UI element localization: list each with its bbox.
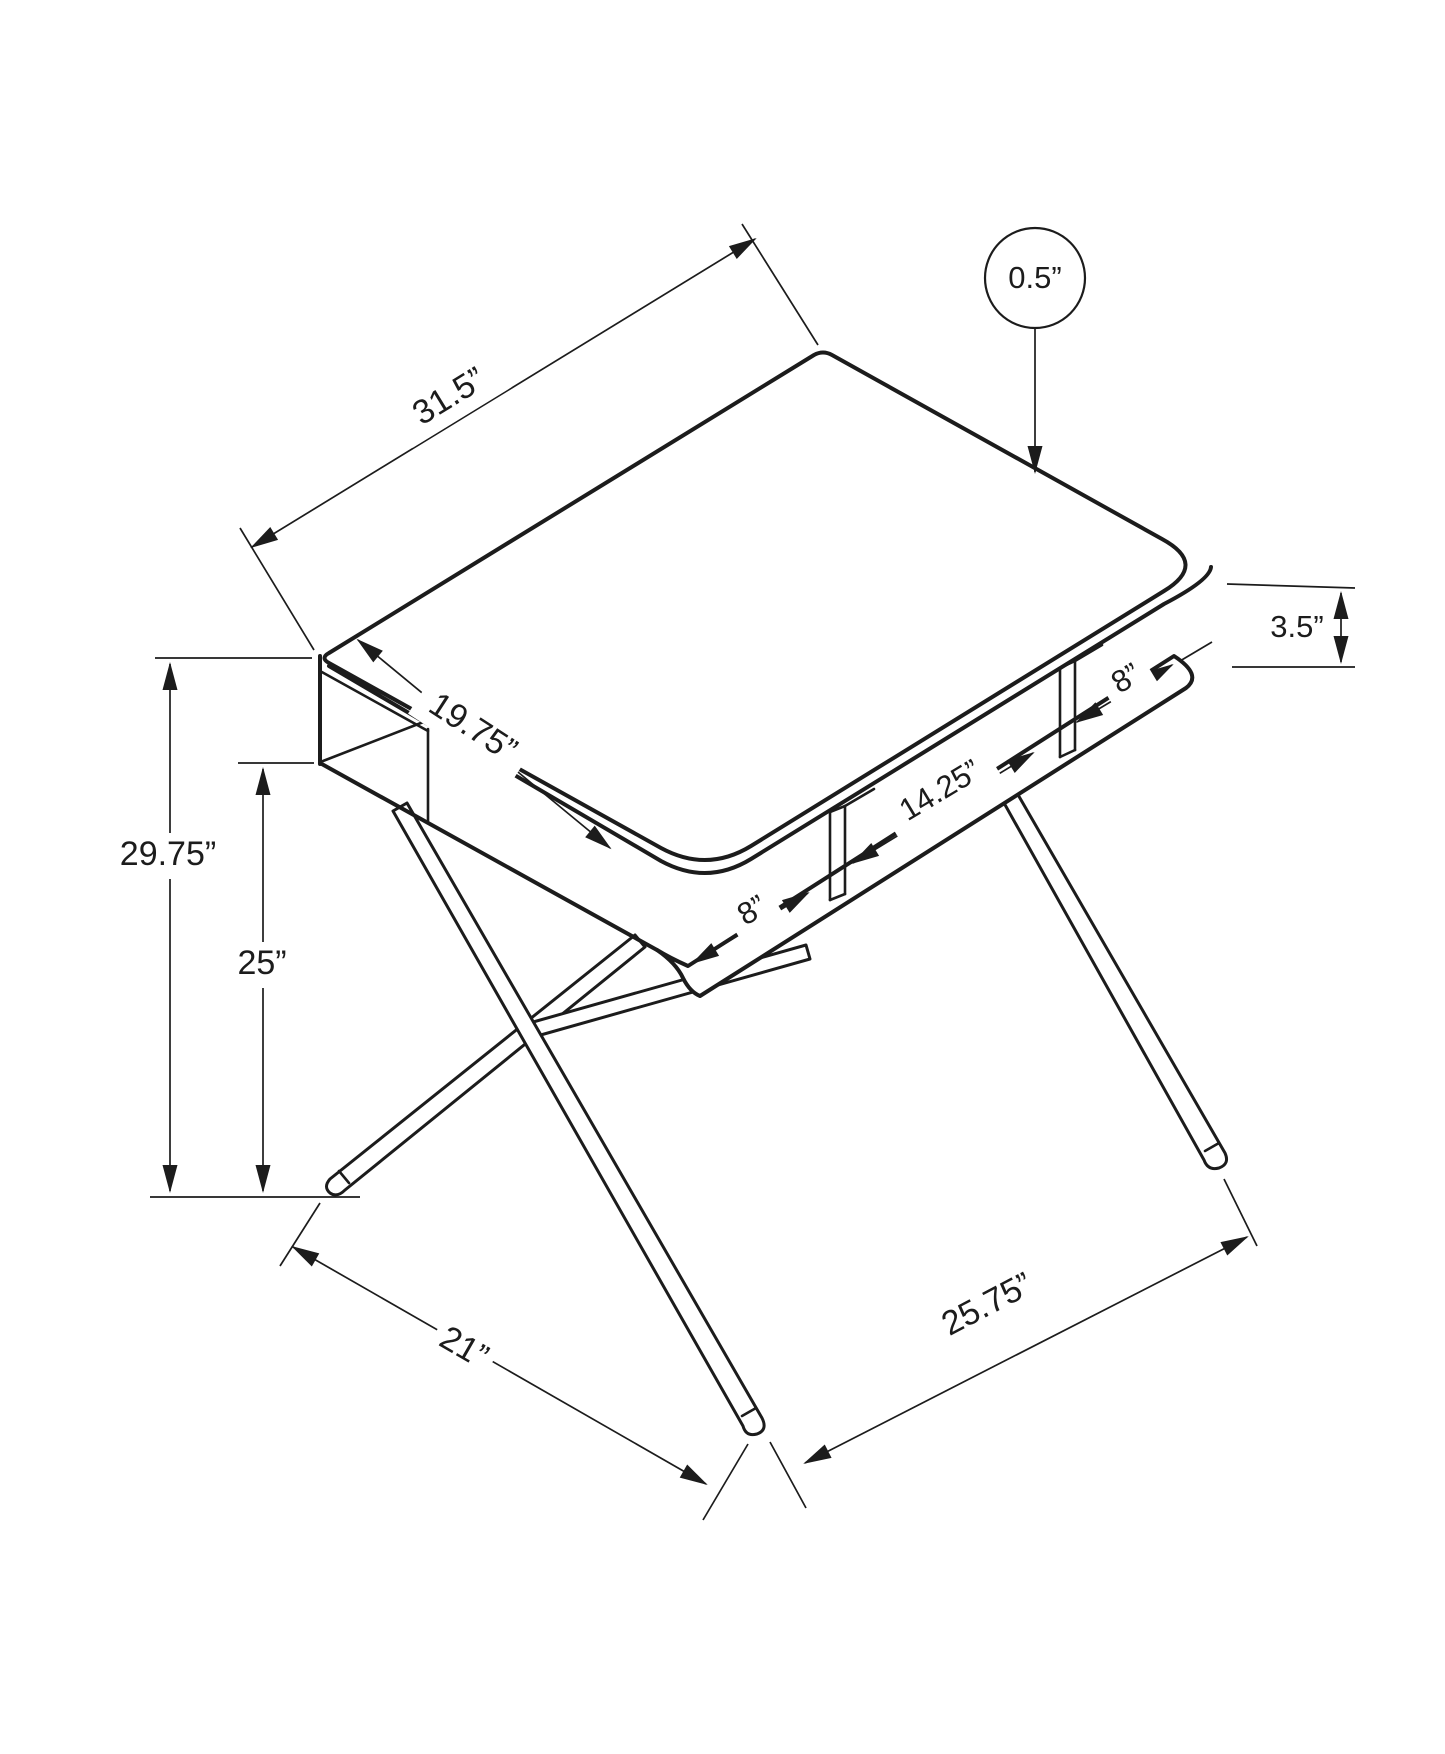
diagram-canvas: 31.5” 0.5” 3.5” 19.75” 8” [0, 0, 1445, 1754]
clearance-label: 3.5” [1270, 609, 1323, 644]
dimension-base-width: 25.75” [770, 1179, 1257, 1508]
desk-dimension-diagram: 31.5” 0.5” 3.5” 19.75” 8” [0, 0, 1445, 1754]
overall-height-label: 29.75” [120, 835, 216, 873]
extension-line [280, 1203, 320, 1266]
dimension-base-depth: 21” [280, 1203, 748, 1520]
dimension-shelf-height: 25” [228, 763, 314, 1191]
extension-line [703, 1444, 748, 1520]
desk-top [320, 353, 1211, 874]
extension-line [770, 1442, 806, 1508]
leg-right [999, 786, 1227, 1169]
shelf-height-label: 25” [237, 944, 286, 982]
extension-line [742, 224, 818, 345]
extension-line [1180, 642, 1212, 661]
dimension-line [293, 1247, 706, 1484]
desktop-surface [325, 353, 1186, 861]
extension-line [1227, 584, 1355, 588]
extension-line [240, 528, 314, 650]
side-panel-interior-edge [323, 721, 426, 761]
divider-right-upper-edge [1075, 645, 1102, 661]
top-thickness-label: 0.5” [1008, 260, 1061, 295]
extension-line [1224, 1179, 1257, 1246]
dimension-clearance: 3.5” [1227, 584, 1355, 667]
dimension-top-thickness: 0.5” [985, 228, 1085, 472]
